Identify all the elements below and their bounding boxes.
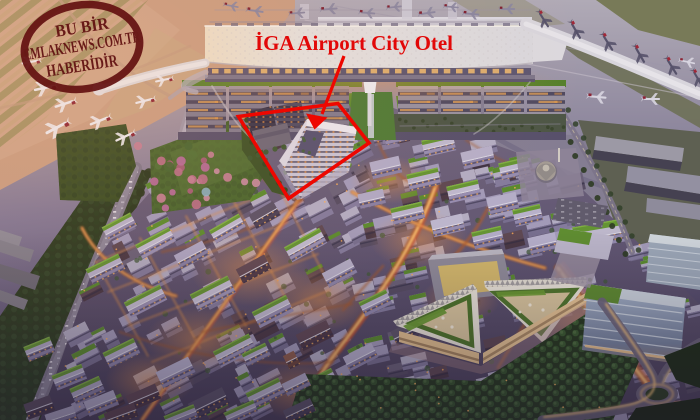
svg-text:İGA Airport City Otel: İGA Airport City Otel xyxy=(255,31,453,55)
